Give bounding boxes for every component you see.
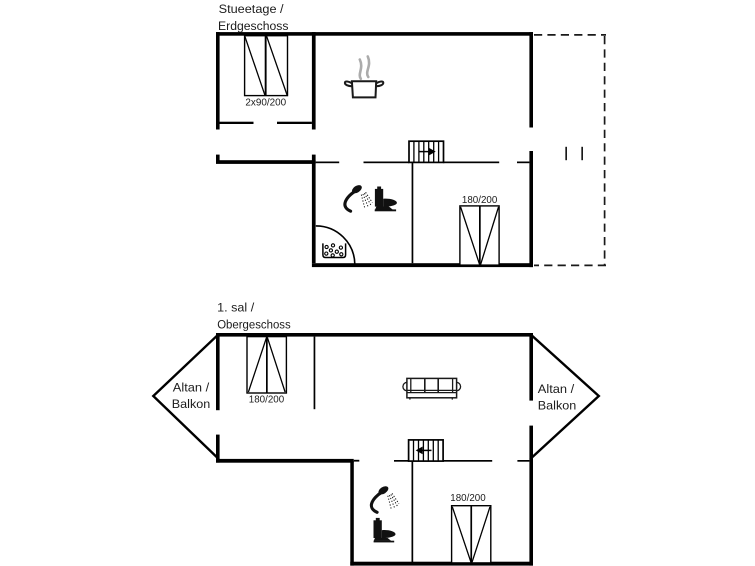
svg-text:Stueetage /: Stueetage /: [219, 2, 285, 16]
svg-text:180/200: 180/200: [450, 493, 486, 504]
svg-text:1. sal /: 1. sal /: [217, 301, 255, 315]
svg-text:Obergeschoss: Obergeschoss: [217, 318, 291, 332]
svg-text:Altan /: Altan /: [538, 382, 575, 396]
svg-text:Erdgeschoss: Erdgeschoss: [218, 19, 289, 33]
svg-text:Balkon: Balkon: [172, 397, 211, 411]
svg-text:180/200: 180/200: [249, 395, 285, 406]
svg-text:180/200: 180/200: [462, 195, 498, 206]
svg-text:Altan /: Altan /: [173, 381, 210, 395]
svg-text:Balkon: Balkon: [538, 399, 577, 413]
svg-text:2x90/200: 2x90/200: [245, 98, 286, 109]
